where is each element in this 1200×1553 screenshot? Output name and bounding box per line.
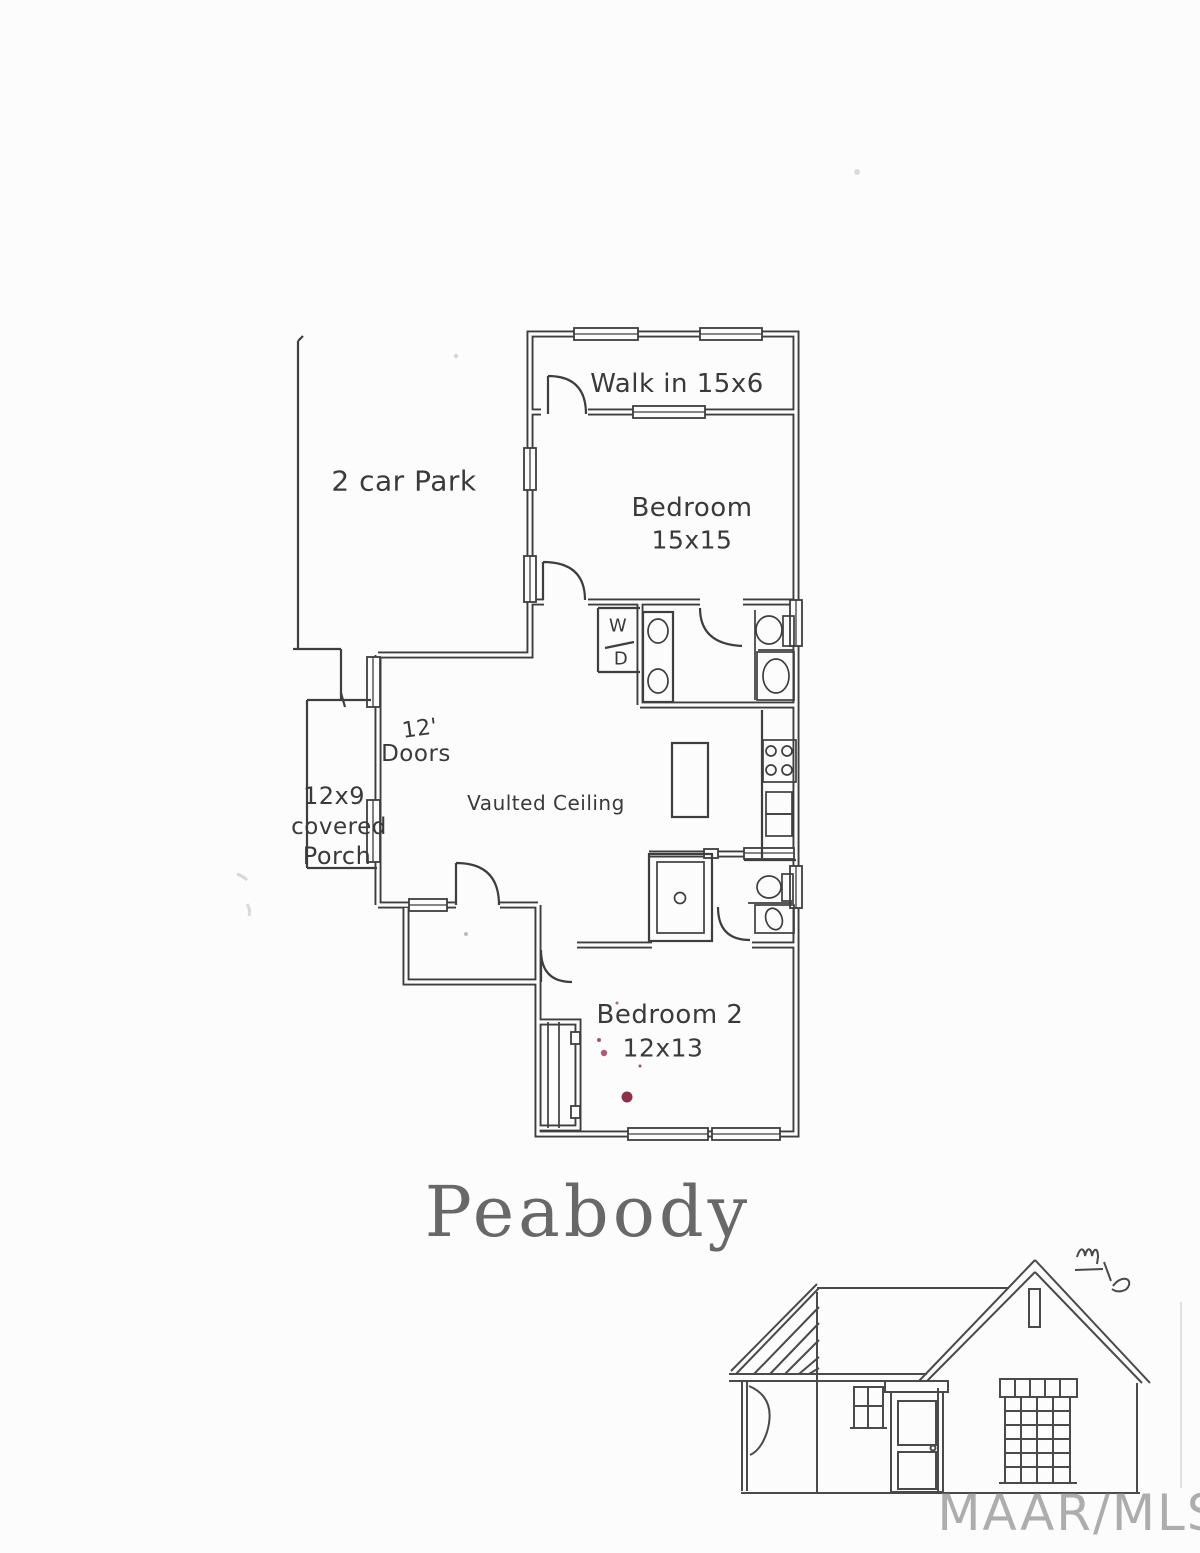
kitchen-island xyxy=(672,743,708,817)
house-elevation-sketch xyxy=(729,1249,1150,1493)
room-label-walk-in-closet: Walk in 15x6 xyxy=(590,369,764,399)
washer-dryer-fraction-line xyxy=(605,642,634,648)
porch-post xyxy=(742,1381,747,1491)
floor-plan-drawing xyxy=(0,0,1200,1553)
door-knob xyxy=(931,1446,936,1451)
window-transom xyxy=(1000,1379,1077,1397)
room-dims-bedroom2: 12x13 xyxy=(623,1034,704,1063)
shower-drain xyxy=(675,893,686,904)
room-dims-bedroom1: 15x15 xyxy=(652,526,733,555)
kitchen-sink xyxy=(766,792,792,814)
vaulted-ceiling-label: Vaulted Ceiling xyxy=(467,791,625,815)
gable-vent xyxy=(1029,1289,1040,1327)
sink-basin xyxy=(648,669,668,693)
scanned-floor-plan-page: Walk in 15x6 2 car Park Bedroom 15x15 W … xyxy=(0,0,1200,1553)
porch-word-label: Porch xyxy=(303,842,372,870)
room-label-bedroom1: Bedroom xyxy=(631,493,752,523)
porch-roof-rafters xyxy=(754,1307,819,1374)
porch-knee-brace xyxy=(749,1386,770,1455)
drafter-initials-squiggle xyxy=(1075,1249,1129,1291)
porch-covered-label: covered xyxy=(291,814,387,840)
sink-basin xyxy=(648,619,668,643)
dryer-label: D xyxy=(614,649,628,670)
closet-shelving xyxy=(548,1022,559,1128)
kitchen-counter xyxy=(744,710,796,860)
plan-title: Peabody xyxy=(425,1171,751,1253)
porch-dims-label: 12x9 xyxy=(303,782,365,810)
toilet-fixture xyxy=(757,876,781,898)
washer-label: W xyxy=(609,616,627,637)
carport-outline xyxy=(293,336,341,700)
mls-watermark: MAAR/MLS xyxy=(937,1484,1200,1542)
room-label-car-park: 2 car Park xyxy=(331,465,476,498)
room-label-bedroom2: Bedroom 2 xyxy=(597,1000,744,1030)
vanity-counter xyxy=(643,612,673,702)
toilet-fixture xyxy=(756,616,782,644)
ink-stain xyxy=(622,1092,633,1103)
sink-basin xyxy=(763,906,786,932)
doors-word-label: Doors xyxy=(381,741,451,767)
doors-height-label: 12' xyxy=(401,714,440,744)
shower-fixture xyxy=(649,854,712,941)
